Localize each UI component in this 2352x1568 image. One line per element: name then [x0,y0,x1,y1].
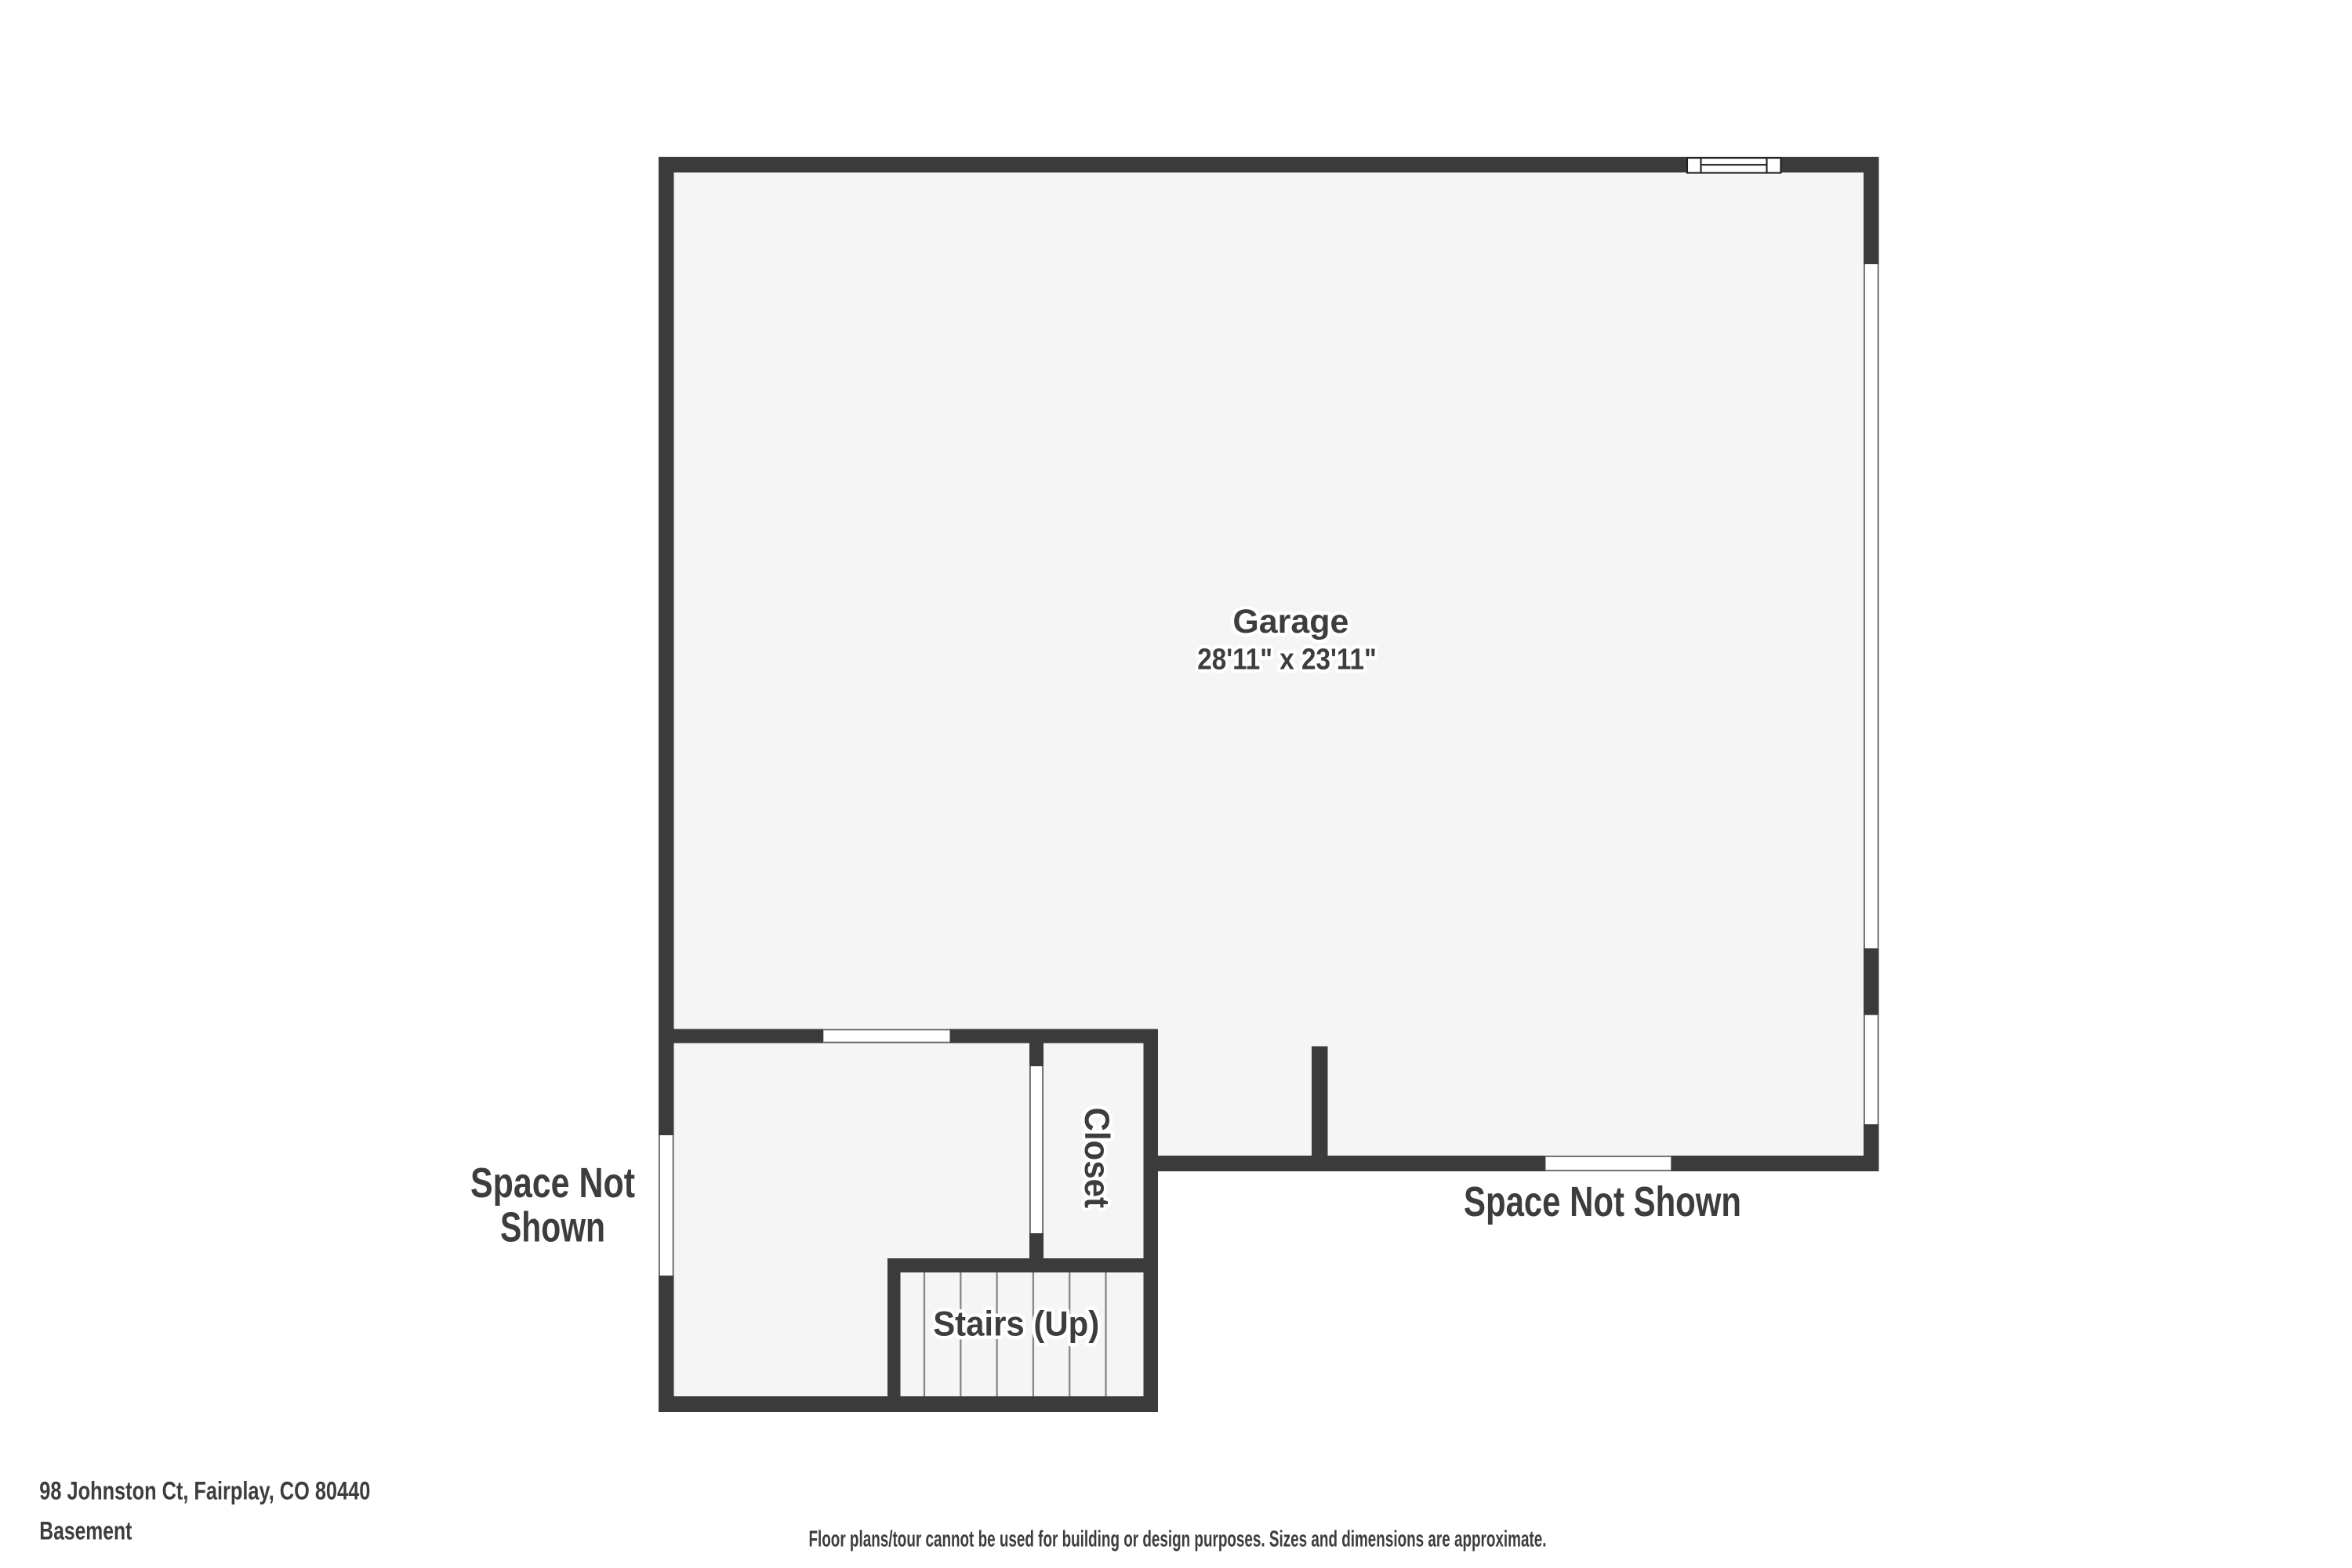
svg-text:Closet: Closet [1077,1108,1116,1209]
svg-text:Stairs (Up): Stairs (Up) [933,1305,1099,1344]
svg-text:Floor plans/tour cannot be use: Floor plans/tour cannot be used for buil… [809,1526,1547,1552]
svg-text:Basement: Basement [39,1515,132,1544]
svg-text:28'11" x 23'11": 28'11" x 23'11" [1197,644,1377,677]
svg-text:Space Not: Space Not [470,1160,635,1207]
svg-text:Garage: Garage [1232,603,1348,641]
svg-text:Shown: Shown [500,1204,605,1251]
svg-text:98 Johnston Ct, Fairplay, CO 8: 98 Johnston Ct, Fairplay, CO 80440 [39,1475,370,1504]
svg-text:Space Not Shown: Space Not Shown [1464,1178,1741,1225]
